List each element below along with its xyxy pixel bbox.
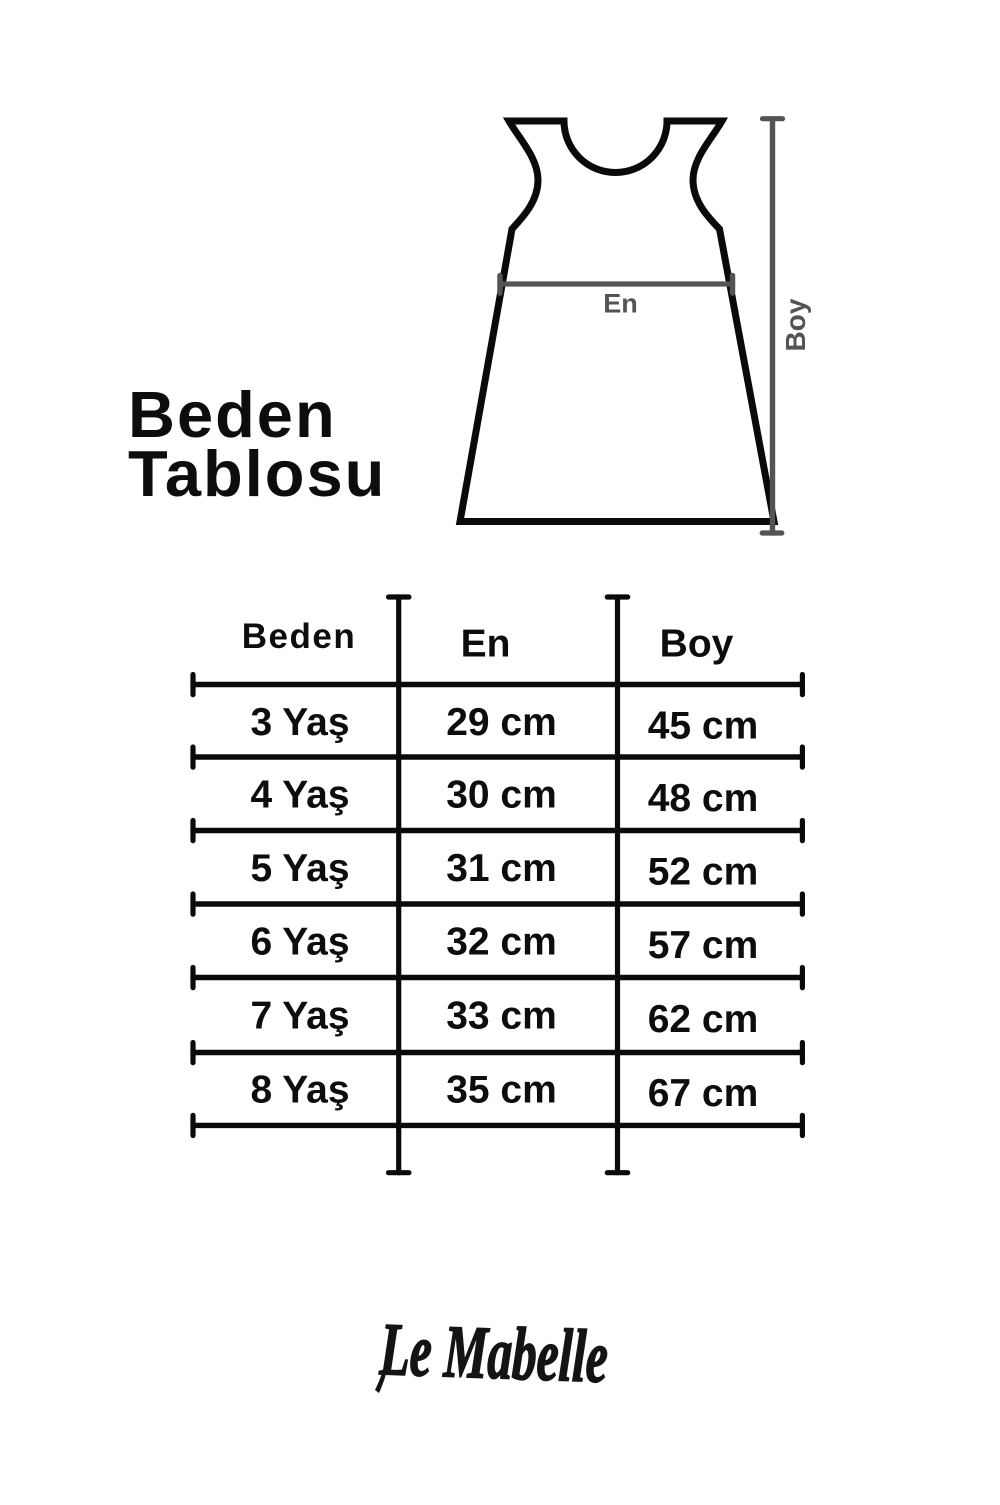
svg-text:52 cm: 52 cm <box>648 850 759 893</box>
svg-text:En: En <box>603 289 638 319</box>
svg-text:7 Yaş: 7 Yaş <box>250 995 349 1038</box>
svg-text:Boy: Boy <box>780 298 811 351</box>
svg-text:45 cm: 45 cm <box>648 705 759 748</box>
svg-text:5 Yaş: 5 Yaş <box>250 847 349 890</box>
svg-text:6 Yaş: 6 Yaş <box>250 920 349 963</box>
svg-text:29 cm: 29 cm <box>446 701 557 744</box>
svg-text:62 cm: 62 cm <box>648 998 759 1041</box>
svg-text:En: En <box>461 623 511 666</box>
svg-text:Beden: Beden <box>242 617 356 656</box>
svg-text:8 Yaş: 8 Yaş <box>250 1069 349 1112</box>
svg-text:57 cm: 57 cm <box>648 924 759 967</box>
svg-text:4 Yaş: 4 Yaş <box>250 773 349 816</box>
svg-text:Le Mabelle: Le Mabelle <box>378 1308 609 1399</box>
svg-text:3 Yaş: 3 Yaş <box>250 701 349 744</box>
svg-text:48 cm: 48 cm <box>648 777 759 820</box>
svg-text:Boy: Boy <box>660 623 734 666</box>
svg-text:67 cm: 67 cm <box>648 1072 759 1115</box>
svg-text:35 cm: 35 cm <box>446 1069 557 1112</box>
svg-text:32 cm: 32 cm <box>446 920 557 963</box>
svg-text:31 cm: 31 cm <box>446 847 557 890</box>
svg-text:30 cm: 30 cm <box>446 773 557 816</box>
svg-text:Tablosu: Tablosu <box>128 437 386 510</box>
svg-text:33 cm: 33 cm <box>446 995 557 1038</box>
